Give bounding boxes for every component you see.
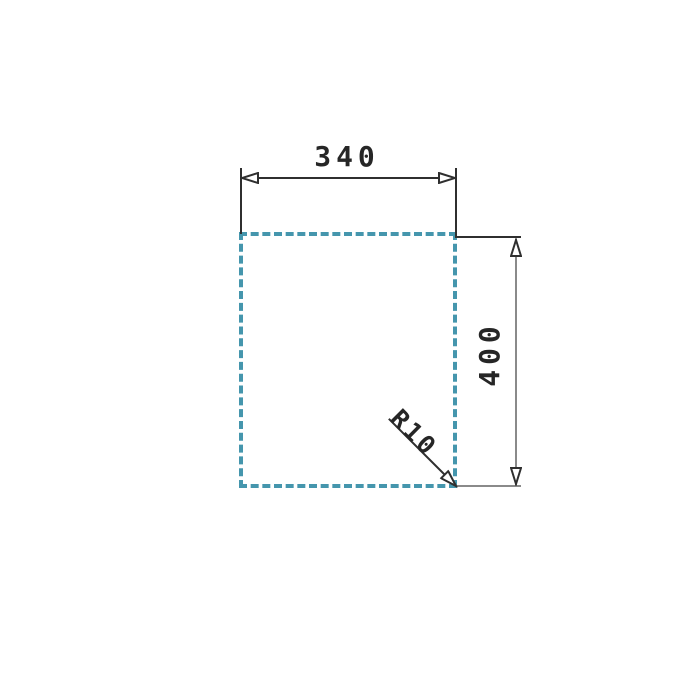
width-arrow-right-icon xyxy=(437,172,457,184)
height-dimension-line xyxy=(515,239,517,486)
height-arrow-up-icon xyxy=(510,238,522,258)
width-arrow-left-icon xyxy=(240,172,260,184)
width-dimension-label: 340 xyxy=(314,143,380,171)
technical-drawing-canvas: 340 400 R10 xyxy=(0,0,700,700)
height-arrow-down-icon xyxy=(510,466,522,486)
width-dimension-line xyxy=(241,177,456,179)
radius-arrow-icon xyxy=(439,469,462,492)
height-dimension-label: 400 xyxy=(476,321,504,387)
